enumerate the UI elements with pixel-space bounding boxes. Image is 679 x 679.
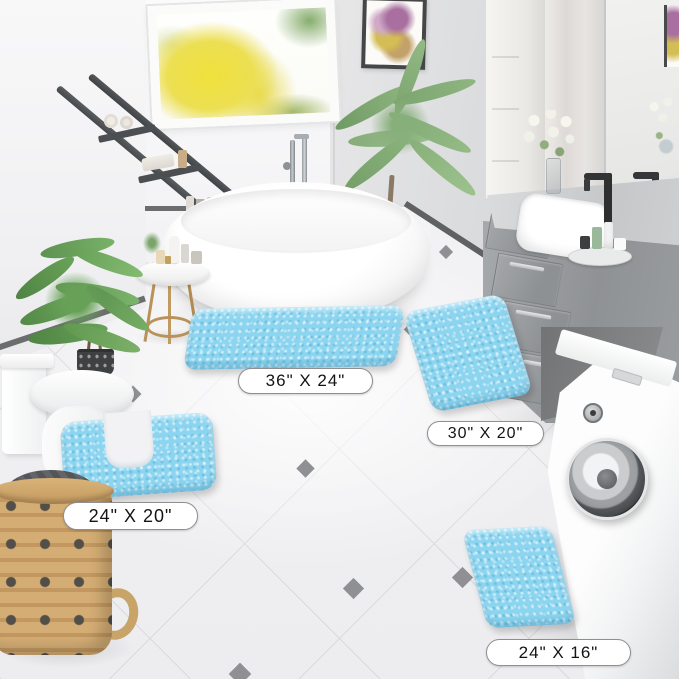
size-label-36x24: 36" X 24" (238, 368, 373, 394)
cabinet-shelf-line (492, 108, 519, 110)
table-top (136, 261, 210, 286)
washer-door-hub (597, 469, 617, 489)
mirror-reflected-faucet-spout (633, 172, 659, 179)
soap-bottle (592, 227, 602, 249)
toiletry-jar (191, 251, 202, 264)
washer-dial-center (590, 410, 596, 416)
flower-bouquet (520, 110, 584, 168)
gold-accent (165, 256, 171, 264)
bathroom-product-scene: 36" X 24" 30" X 20" 24" X 20" 24" X 16" (0, 0, 679, 679)
tall-storage-cabinet (486, 0, 545, 198)
size-label-24x20: 24" X 20" (63, 502, 198, 530)
bottle (178, 150, 187, 168)
toilet-tank-lid (0, 354, 54, 368)
table-leg-ring (146, 316, 194, 338)
size-label-30x20: 30" X 20" (427, 421, 544, 446)
soap-pump-bottle (604, 222, 613, 248)
plant-foliage-center (45, 272, 107, 330)
size-label-24x16: 24" X 16" (486, 639, 631, 666)
bathtub-rim (181, 189, 411, 253)
floor-tile-accent (296, 459, 314, 477)
cabinet-shelf-line (492, 56, 519, 58)
rolled-towel (120, 116, 133, 129)
rug-36x24 (183, 305, 405, 370)
sink-faucet-tip (584, 179, 590, 191)
faucet-handle (283, 162, 291, 170)
toiletry-bottle (181, 244, 189, 263)
soap-jar (580, 236, 590, 249)
mirror-reflected-art (664, 5, 679, 67)
window-with-trees (147, 0, 339, 129)
rolled-towel (104, 114, 118, 128)
floor-tile-accent (452, 567, 473, 588)
floor-tile-accent (343, 578, 364, 599)
soap-jar (614, 238, 626, 250)
contour-notch (103, 410, 155, 469)
faucet-spout (294, 134, 309, 139)
cabinet-shelf-line (492, 160, 519, 162)
floor-tile-accent (229, 663, 252, 679)
mirror-reflected-flowers (644, 96, 678, 168)
floor-tile-accent (439, 245, 453, 259)
toiletry-bottle (170, 236, 179, 263)
palm-foliage-center (370, 95, 430, 155)
freestanding-bathtub (162, 182, 430, 322)
candle (156, 250, 165, 264)
